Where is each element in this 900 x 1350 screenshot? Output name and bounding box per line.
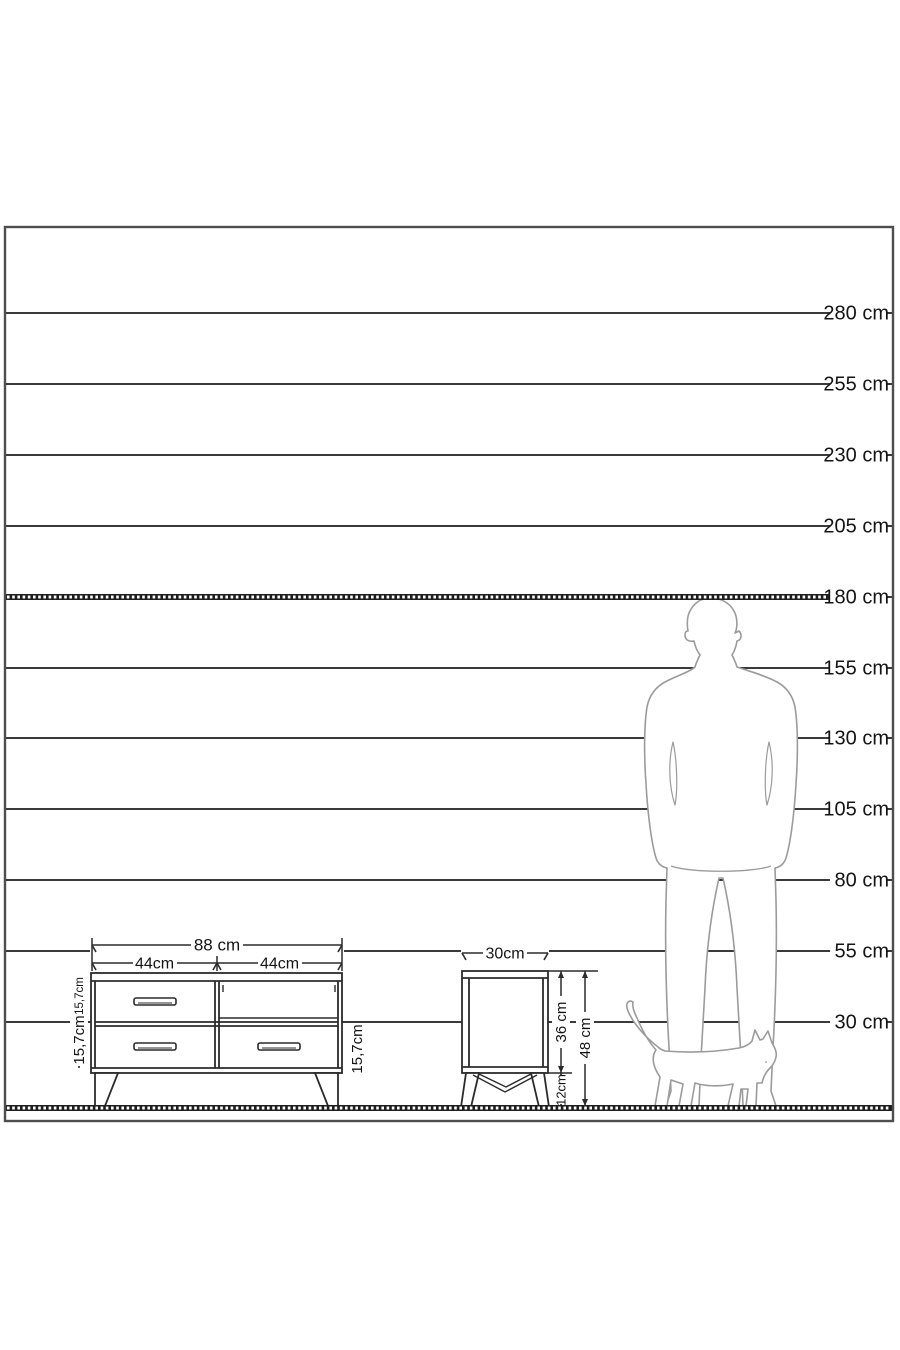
height-label: 55 cm xyxy=(835,941,889,963)
dimension-label: 48 cm xyxy=(577,1018,594,1059)
dimension-label: 88 cm xyxy=(194,936,240,955)
dimension-label: 15,7cm xyxy=(349,1024,366,1073)
height-label: 180 cm xyxy=(823,587,889,609)
dimension-label: 44cm xyxy=(135,955,174,972)
emphasized-height-line-180 xyxy=(6,594,829,600)
nightstand-body xyxy=(462,971,548,1073)
dimension-label: 44cm xyxy=(260,955,299,972)
nightstand-leg-height-dimension: 12cm xyxy=(553,1073,569,1106)
height-label: 280 cm xyxy=(823,303,889,325)
tv-stand-bottom-drawer-height-dimension-right: 15,7cm xyxy=(348,1023,366,1075)
height-label: 230 cm xyxy=(823,445,889,467)
ground-line xyxy=(6,1105,892,1111)
tv-stand-drawer-handle-bottom-left xyxy=(134,1043,176,1050)
page-background xyxy=(0,0,900,1350)
cat-face-dot xyxy=(765,1061,767,1063)
dimension-label: 15,7cm xyxy=(74,977,86,1015)
height-label: 255 cm xyxy=(823,374,889,396)
tv-stand-drawer-handle-bottom-right xyxy=(258,1043,300,1050)
height-label: 130 cm xyxy=(823,728,889,750)
furniture-scale-diagram-page: 280 cm255 cm230 cm205 cm180 cm155 cm130 … xyxy=(0,0,900,1350)
tv-stand-drawer-handle-top-left xyxy=(134,998,176,1005)
height-label: 205 cm xyxy=(823,516,889,538)
tv-stand-body xyxy=(91,973,342,1073)
dimension-label: 36 cm xyxy=(553,1002,570,1043)
height-label: 30 cm xyxy=(835,1012,889,1034)
tv-stand-bottom-drawer-height-dimension-left: 15,7cm xyxy=(70,1014,88,1068)
dimension-label: 12cm xyxy=(553,1074,568,1106)
height-label: 105 cm xyxy=(823,799,889,821)
height-label: 155 cm xyxy=(823,658,889,680)
height-label: 80 cm xyxy=(835,870,889,892)
furniture-dimension-diagram: 280 cm255 cm230 cm205 cm180 cm155 cm130 … xyxy=(0,0,900,1350)
nightstand-drawing xyxy=(461,971,549,1107)
dimension-label: 30cm xyxy=(485,945,524,962)
dimension-label: 15,7cm xyxy=(71,1015,88,1064)
